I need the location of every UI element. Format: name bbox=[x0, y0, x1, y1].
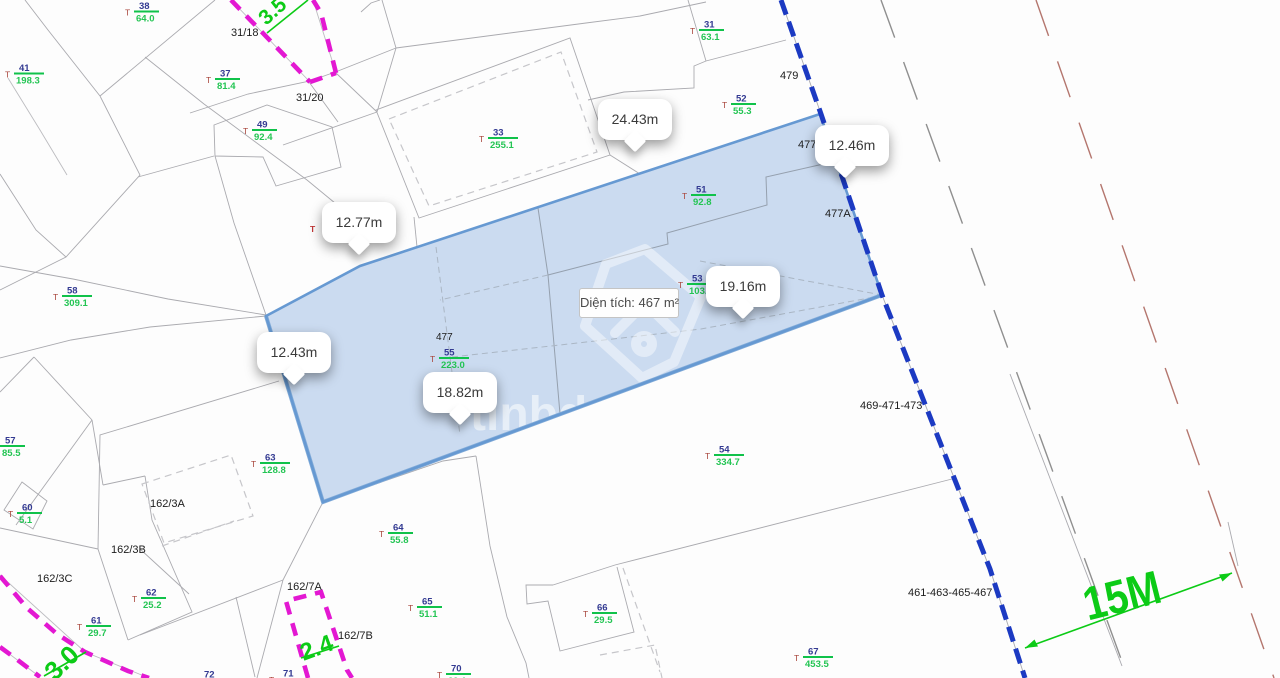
svg-text:T: T bbox=[794, 653, 799, 663]
svg-text:33: 33 bbox=[493, 128, 504, 139]
svg-text:T: T bbox=[251, 459, 256, 469]
svg-text:T: T bbox=[8, 509, 13, 519]
svg-text:T: T bbox=[583, 609, 588, 619]
svg-text:T: T bbox=[479, 134, 484, 144]
svg-text:223.0: 223.0 bbox=[441, 360, 465, 371]
svg-text:64.0: 64.0 bbox=[136, 14, 155, 25]
svg-text:25.2: 25.2 bbox=[143, 600, 162, 611]
svg-text:T: T bbox=[77, 622, 82, 632]
svg-text:3.5: 3.5 bbox=[254, 0, 291, 30]
svg-text:162/3B: 162/3B bbox=[111, 544, 146, 556]
svg-text:92.8: 92.8 bbox=[693, 197, 712, 208]
svg-text:162/7A: 162/7A bbox=[287, 581, 323, 593]
svg-text:T: T bbox=[690, 26, 695, 36]
svg-text:T: T bbox=[243, 126, 248, 136]
svg-text:37: 37 bbox=[220, 69, 231, 80]
svg-text:29.5: 29.5 bbox=[594, 615, 613, 626]
svg-text:477: 477 bbox=[798, 139, 816, 151]
svg-text:162/3A: 162/3A bbox=[150, 498, 186, 510]
svg-text:T: T bbox=[379, 529, 384, 539]
svg-text:461-463-465-467: 461-463-465-467 bbox=[908, 587, 992, 599]
svg-text:T: T bbox=[132, 594, 137, 604]
svg-text:334.7: 334.7 bbox=[716, 457, 740, 468]
svg-text:70: 70 bbox=[451, 664, 462, 675]
svg-text:255.1: 255.1 bbox=[490, 140, 514, 151]
svg-text:58: 58 bbox=[67, 286, 78, 297]
svg-text:72: 72 bbox=[204, 670, 215, 678]
svg-text:162/3C: 162/3C bbox=[37, 573, 73, 585]
svg-text:29.7: 29.7 bbox=[88, 628, 107, 639]
svg-text:469-471-473: 469-471-473 bbox=[860, 400, 922, 412]
svg-text:477: 477 bbox=[436, 332, 453, 343]
svg-text:85.5: 85.5 bbox=[2, 448, 21, 459]
svg-text:162/7B: 162/7B bbox=[338, 630, 373, 642]
svg-text:309.1: 309.1 bbox=[64, 298, 88, 309]
svg-text:67: 67 bbox=[808, 647, 819, 658]
svg-text:60: 60 bbox=[22, 503, 33, 514]
svg-text:55.3: 55.3 bbox=[733, 106, 752, 117]
svg-text:62: 62 bbox=[146, 588, 157, 599]
svg-text:52: 52 bbox=[736, 94, 747, 105]
svg-text:49: 49 bbox=[257, 120, 268, 131]
svg-text:T: T bbox=[310, 224, 316, 234]
svg-text:T: T bbox=[5, 70, 10, 80]
svg-text:51: 51 bbox=[696, 185, 707, 196]
svg-text:53: 53 bbox=[692, 274, 703, 285]
svg-text:453.5: 453.5 bbox=[805, 659, 829, 670]
svg-text:71: 71 bbox=[283, 669, 294, 678]
svg-text:31: 31 bbox=[704, 20, 715, 31]
svg-text:198.3: 198.3 bbox=[16, 76, 40, 87]
svg-text:T: T bbox=[53, 292, 58, 302]
svg-text:38: 38 bbox=[139, 1, 150, 12]
svg-text:64: 64 bbox=[393, 523, 404, 534]
svg-text:T: T bbox=[722, 100, 727, 110]
svg-text:57: 57 bbox=[5, 436, 16, 447]
svg-text:T: T bbox=[678, 280, 683, 290]
svg-text:T: T bbox=[206, 75, 211, 85]
svg-text:54: 54 bbox=[719, 445, 730, 456]
svg-text:T: T bbox=[125, 8, 130, 18]
svg-text:63.1: 63.1 bbox=[701, 32, 720, 43]
svg-text:5.1: 5.1 bbox=[19, 515, 33, 526]
svg-text:65: 65 bbox=[422, 597, 433, 608]
svg-text:477A: 477A bbox=[825, 208, 851, 220]
svg-text:479: 479 bbox=[780, 70, 798, 82]
svg-text:T: T bbox=[430, 354, 435, 364]
svg-text:31/20: 31/20 bbox=[296, 92, 324, 104]
svg-text:T: T bbox=[682, 191, 687, 201]
svg-text:55: 55 bbox=[444, 348, 455, 359]
svg-text:31/18: 31/18 bbox=[231, 27, 259, 39]
svg-text:81.4: 81.4 bbox=[217, 81, 236, 92]
svg-text:15M: 15M bbox=[1078, 560, 1167, 630]
svg-text:128.8: 128.8 bbox=[262, 465, 286, 476]
svg-text:92.4: 92.4 bbox=[254, 132, 273, 143]
svg-text:51.1: 51.1 bbox=[419, 609, 438, 620]
svg-text:61: 61 bbox=[91, 616, 102, 627]
svg-text:66: 66 bbox=[597, 603, 608, 614]
svg-text:T: T bbox=[437, 670, 442, 678]
svg-text:55.8: 55.8 bbox=[390, 535, 409, 546]
svg-text:T: T bbox=[705, 451, 710, 461]
svg-text:41: 41 bbox=[19, 63, 30, 74]
svg-text:63: 63 bbox=[265, 453, 276, 464]
svg-text:T: T bbox=[408, 603, 413, 613]
